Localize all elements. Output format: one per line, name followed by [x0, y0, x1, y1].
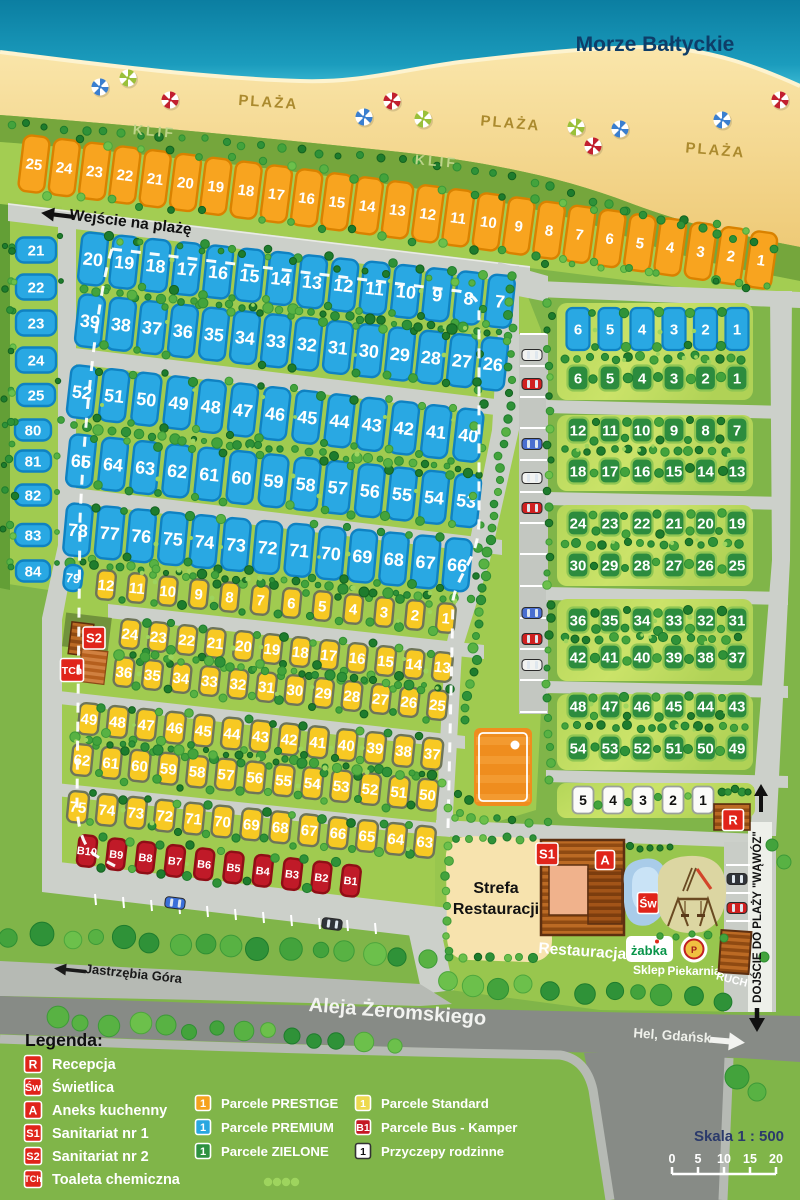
svg-text:R: R [728, 813, 738, 828]
svg-text:47: 47 [232, 399, 254, 421]
svg-text:27: 27 [371, 691, 389, 710]
svg-text:15: 15 [666, 463, 683, 480]
svg-text:0: 0 [669, 1152, 676, 1166]
svg-text:67: 67 [300, 822, 318, 841]
svg-text:10: 10 [159, 583, 177, 602]
svg-text:38: 38 [110, 314, 132, 336]
svg-text:5: 5 [317, 598, 327, 616]
svg-text:Parcele Standard: Parcele Standard [381, 1096, 489, 1111]
svg-text:35: 35 [143, 667, 161, 686]
svg-text:4: 4 [609, 792, 617, 808]
svg-text:39: 39 [666, 649, 683, 666]
svg-text:1: 1 [441, 610, 451, 628]
svg-text:65: 65 [70, 451, 92, 473]
svg-text:74: 74 [193, 531, 215, 553]
svg-text:12: 12 [97, 577, 115, 596]
svg-text:69: 69 [242, 816, 260, 835]
svg-text:24: 24 [28, 352, 45, 369]
svg-text:Świetlica: Świetlica [52, 1078, 115, 1096]
svg-text:13: 13 [433, 659, 451, 678]
svg-text:49: 49 [729, 740, 746, 757]
svg-text:82: 82 [25, 487, 42, 504]
svg-text:53: 53 [602, 740, 619, 757]
svg-text:18: 18 [145, 255, 167, 277]
svg-text:18: 18 [291, 644, 309, 663]
svg-text:44: 44 [328, 410, 350, 432]
svg-text:6: 6 [286, 595, 296, 613]
svg-text:Parcele PRESTIGE: Parcele PRESTIGE [221, 1096, 338, 1111]
svg-text:72: 72 [155, 807, 173, 826]
svg-text:27: 27 [451, 350, 473, 372]
svg-text:28: 28 [343, 688, 361, 707]
svg-text:17: 17 [176, 258, 198, 280]
svg-text:67: 67 [415, 552, 437, 574]
svg-text:1: 1 [733, 370, 741, 387]
svg-text:76: 76 [130, 525, 152, 547]
svg-text:24: 24 [55, 159, 74, 178]
svg-text:13: 13 [388, 201, 407, 220]
svg-text:1: 1 [200, 1098, 206, 1110]
svg-text:68: 68 [383, 549, 405, 571]
svg-text:71: 71 [288, 540, 310, 562]
svg-text:28: 28 [420, 347, 442, 369]
svg-text:B10: B10 [76, 845, 97, 859]
svg-text:32: 32 [229, 676, 247, 695]
svg-text:25: 25 [428, 697, 446, 716]
svg-text:B4: B4 [255, 865, 271, 879]
svg-text:31: 31 [729, 612, 746, 629]
svg-text:A: A [600, 853, 610, 868]
svg-text:Morze Bałtyckie: Morze Bałtyckie [576, 33, 735, 56]
svg-text:7: 7 [494, 291, 506, 312]
svg-text:żabka: żabka [631, 943, 668, 958]
svg-text:DOJŚCIE DO PLAŻY "WĄWÓZ": DOJŚCIE DO PLAŻY "WĄWÓZ" [751, 831, 764, 1003]
svg-text:Skala 1 : 500: Skala 1 : 500 [694, 1128, 784, 1145]
svg-text:5: 5 [579, 792, 587, 808]
svg-text:47: 47 [602, 698, 619, 715]
svg-text:Sanitariat nr 1: Sanitariat nr 1 [52, 1126, 149, 1142]
svg-text:53: 53 [332, 778, 350, 797]
svg-text:5: 5 [606, 321, 614, 338]
svg-text:20: 20 [82, 249, 104, 271]
svg-text:66: 66 [329, 825, 347, 844]
svg-text:19: 19 [729, 515, 746, 532]
svg-text:28: 28 [634, 557, 651, 574]
svg-text:23: 23 [602, 515, 619, 532]
svg-text:22: 22 [28, 279, 45, 296]
svg-text:20: 20 [176, 174, 195, 193]
svg-text:29: 29 [314, 685, 332, 704]
svg-text:61: 61 [102, 755, 120, 774]
svg-text:7: 7 [255, 592, 265, 610]
svg-text:1: 1 [733, 321, 741, 338]
svg-text:14: 14 [697, 463, 714, 480]
svg-text:34: 34 [234, 327, 256, 349]
svg-text:Św: Św [639, 895, 657, 910]
svg-text:35: 35 [602, 612, 619, 629]
svg-text:16: 16 [348, 650, 366, 669]
svg-text:60: 60 [230, 467, 252, 489]
svg-text:S1: S1 [26, 1128, 39, 1140]
svg-text:44: 44 [697, 698, 714, 715]
svg-text:49: 49 [167, 392, 189, 414]
svg-text:Recepcja: Recepcja [52, 1057, 117, 1073]
svg-text:16: 16 [297, 189, 316, 208]
svg-text:26: 26 [697, 557, 714, 574]
svg-text:81: 81 [25, 453, 42, 470]
svg-text:77: 77 [99, 523, 121, 545]
svg-text:Parcele PREMIUM: Parcele PREMIUM [221, 1120, 334, 1135]
svg-text:B7: B7 [167, 855, 182, 868]
svg-text:60: 60 [130, 757, 148, 776]
svg-text:68: 68 [271, 819, 289, 838]
svg-text:Strefa: Strefa [473, 880, 518, 897]
svg-text:40: 40 [337, 737, 355, 756]
svg-text:43: 43 [729, 698, 746, 715]
svg-text:25: 25 [28, 387, 45, 404]
svg-text:42: 42 [570, 649, 587, 666]
svg-text:80: 80 [25, 422, 42, 439]
svg-text:18: 18 [237, 182, 256, 201]
svg-text:45: 45 [666, 698, 683, 715]
svg-text:27: 27 [666, 557, 683, 574]
svg-text:3: 3 [379, 604, 389, 622]
svg-text:17: 17 [320, 647, 338, 666]
svg-text:14: 14 [358, 197, 377, 216]
svg-text:23: 23 [149, 629, 167, 648]
svg-text:10: 10 [479, 213, 498, 232]
svg-text:21: 21 [146, 170, 165, 189]
svg-text:78: 78 [67, 520, 89, 542]
svg-text:19: 19 [263, 641, 281, 660]
svg-text:2: 2 [701, 370, 709, 387]
svg-text:Parcele Bus - Kamper: Parcele Bus - Kamper [381, 1120, 517, 1135]
svg-text:13: 13 [729, 463, 746, 480]
svg-text:3: 3 [670, 321, 678, 338]
svg-text:8: 8 [225, 589, 235, 607]
svg-text:54: 54 [303, 775, 322, 794]
svg-text:B6: B6 [196, 858, 211, 871]
svg-text:21: 21 [666, 515, 683, 532]
svg-text:9: 9 [670, 422, 678, 439]
svg-text:37: 37 [729, 649, 746, 666]
svg-text:Restauracji: Restauracji [453, 901, 539, 918]
svg-text:2: 2 [669, 792, 677, 808]
svg-text:R: R [29, 1057, 38, 1071]
svg-text:61: 61 [198, 464, 220, 486]
svg-text:26: 26 [400, 694, 418, 713]
svg-text:18: 18 [570, 463, 587, 480]
svg-text:29: 29 [602, 557, 619, 574]
svg-text:B9: B9 [109, 849, 124, 862]
svg-text:20: 20 [234, 638, 252, 657]
svg-text:50: 50 [418, 786, 436, 805]
svg-text:43: 43 [361, 414, 383, 436]
svg-text:B5: B5 [226, 862, 241, 875]
svg-text:32: 32 [697, 612, 714, 629]
svg-text:16: 16 [634, 463, 651, 480]
svg-text:33: 33 [265, 330, 287, 352]
svg-text:3: 3 [639, 792, 647, 808]
svg-text:42: 42 [280, 731, 298, 750]
svg-text:57: 57 [327, 477, 349, 499]
svg-text:15: 15 [238, 265, 260, 287]
svg-text:42: 42 [393, 417, 415, 439]
svg-text:63: 63 [134, 457, 156, 479]
svg-text:22: 22 [634, 515, 651, 532]
svg-text:20: 20 [697, 515, 714, 532]
svg-text:Sanitariat nr 2: Sanitariat nr 2 [52, 1149, 149, 1165]
svg-text:50: 50 [135, 389, 157, 411]
svg-text:16: 16 [207, 262, 229, 284]
svg-text:19: 19 [206, 178, 225, 197]
svg-text:5: 5 [695, 1152, 702, 1166]
svg-text:43: 43 [251, 728, 269, 747]
svg-text:6: 6 [574, 321, 582, 338]
svg-text:A: A [29, 1103, 38, 1117]
svg-text:21: 21 [206, 635, 224, 654]
svg-text:P: P [691, 945, 697, 955]
svg-text:36: 36 [570, 612, 587, 629]
svg-text:30: 30 [358, 340, 380, 362]
svg-text:15: 15 [328, 193, 347, 212]
svg-text:31: 31 [327, 337, 349, 359]
svg-text:21: 21 [28, 242, 45, 259]
svg-text:1: 1 [360, 1146, 366, 1158]
svg-text:44: 44 [223, 725, 242, 744]
svg-text:3: 3 [670, 370, 678, 387]
svg-text:66: 66 [446, 554, 468, 576]
svg-text:33: 33 [200, 673, 218, 692]
svg-text:35: 35 [203, 324, 225, 346]
svg-text:37: 37 [423, 745, 441, 764]
svg-text:59: 59 [159, 760, 177, 779]
svg-text:72: 72 [257, 537, 279, 559]
svg-text:58: 58 [295, 474, 317, 496]
svg-text:55: 55 [274, 772, 292, 791]
svg-text:17: 17 [267, 185, 286, 204]
svg-text:83: 83 [25, 527, 42, 544]
svg-text:63: 63 [416, 833, 434, 852]
svg-text:10: 10 [634, 422, 651, 439]
svg-text:38: 38 [394, 742, 412, 761]
svg-text:Legenda:: Legenda: [25, 1030, 103, 1050]
svg-text:52: 52 [361, 781, 379, 800]
svg-text:48: 48 [570, 698, 587, 715]
svg-text:46: 46 [264, 403, 286, 425]
svg-text:58: 58 [188, 763, 206, 782]
svg-text:23: 23 [85, 163, 104, 182]
svg-text:25: 25 [729, 557, 746, 574]
svg-text:55: 55 [391, 484, 413, 506]
svg-text:Piekarnia: Piekarnia [667, 964, 721, 978]
svg-text:Parcele ZIELONE: Parcele ZIELONE [221, 1144, 329, 1159]
svg-text:23: 23 [28, 315, 45, 332]
svg-text:9: 9 [194, 586, 204, 604]
svg-text:14: 14 [405, 656, 424, 675]
svg-text:40: 40 [634, 649, 651, 666]
svg-text:41: 41 [425, 421, 447, 443]
svg-text:15: 15 [376, 653, 394, 672]
svg-text:11: 11 [602, 422, 618, 439]
svg-text:36: 36 [115, 664, 133, 683]
svg-text:49: 49 [80, 711, 98, 730]
svg-text:65: 65 [358, 828, 376, 847]
svg-text:34: 34 [634, 612, 651, 629]
svg-text:2: 2 [701, 321, 709, 338]
svg-text:B3: B3 [284, 868, 299, 881]
svg-text:12: 12 [570, 422, 587, 439]
svg-text:2: 2 [410, 607, 420, 625]
svg-text:B1: B1 [356, 1122, 370, 1134]
svg-text:24: 24 [570, 515, 587, 532]
svg-text:22: 22 [178, 632, 196, 651]
svg-text:41: 41 [602, 649, 619, 666]
svg-text:S2: S2 [26, 1151, 39, 1163]
svg-text:52: 52 [634, 740, 651, 757]
svg-text:62: 62 [166, 460, 188, 482]
svg-text:71: 71 [184, 810, 202, 829]
svg-text:30: 30 [570, 557, 587, 574]
svg-text:69: 69 [351, 546, 373, 568]
svg-text:S2: S2 [86, 631, 102, 646]
svg-text:64: 64 [387, 831, 406, 850]
svg-text:54: 54 [570, 740, 587, 757]
svg-text:33: 33 [666, 612, 683, 629]
svg-text:51: 51 [103, 385, 125, 407]
svg-text:73: 73 [225, 534, 247, 556]
svg-text:73: 73 [127, 804, 145, 823]
svg-text:39: 39 [366, 740, 384, 759]
svg-text:57: 57 [217, 766, 235, 785]
svg-text:B2: B2 [314, 872, 329, 885]
svg-text:1: 1 [699, 792, 707, 808]
svg-text:4: 4 [638, 321, 647, 338]
svg-text:36: 36 [172, 320, 194, 342]
svg-text:8: 8 [701, 422, 709, 439]
svg-text:22: 22 [115, 166, 134, 185]
svg-text:B8: B8 [138, 852, 153, 865]
svg-text:Aneks kuchenny: Aneks kuchenny [52, 1103, 167, 1119]
svg-text:46: 46 [634, 698, 651, 715]
svg-text:TCh: TCh [24, 1174, 42, 1184]
svg-text:17: 17 [602, 463, 619, 480]
svg-text:26: 26 [482, 353, 504, 375]
svg-text:Toaleta chemiczna: Toaleta chemiczna [52, 1172, 181, 1188]
svg-text:4: 4 [638, 370, 647, 387]
svg-text:51: 51 [666, 740, 683, 757]
svg-text:59: 59 [263, 470, 285, 492]
svg-text:19: 19 [113, 252, 135, 274]
svg-text:48: 48 [108, 713, 126, 732]
svg-text:37: 37 [141, 317, 163, 339]
svg-text:50: 50 [697, 740, 714, 757]
svg-text:75: 75 [162, 528, 184, 550]
svg-text:24: 24 [121, 626, 140, 645]
svg-text:32: 32 [296, 334, 318, 356]
svg-text:46: 46 [166, 719, 184, 738]
svg-text:64: 64 [102, 454, 124, 476]
svg-text:56: 56 [359, 480, 381, 502]
svg-text:47: 47 [137, 716, 155, 735]
svg-text:54: 54 [423, 487, 445, 509]
svg-text:Św: Św [25, 1081, 41, 1094]
svg-text:B1: B1 [343, 875, 358, 888]
svg-text:5: 5 [606, 370, 614, 387]
svg-text:25: 25 [25, 155, 44, 174]
svg-text:12: 12 [418, 205, 437, 224]
svg-text:1: 1 [200, 1146, 206, 1158]
svg-text:31: 31 [257, 679, 275, 698]
svg-text:11: 11 [449, 209, 467, 228]
svg-text:30: 30 [286, 682, 304, 701]
svg-text:74: 74 [98, 802, 117, 821]
svg-text:Sklep: Sklep [633, 963, 665, 977]
svg-text:7: 7 [733, 422, 741, 439]
svg-text:62: 62 [73, 752, 91, 771]
svg-text:56: 56 [246, 769, 264, 788]
svg-text:15: 15 [743, 1152, 757, 1166]
svg-text:38: 38 [697, 649, 714, 666]
svg-text:Przyczepy rodzinne: Przyczepy rodzinne [381, 1144, 504, 1159]
svg-text:1: 1 [360, 1098, 366, 1110]
svg-text:51: 51 [390, 784, 408, 803]
svg-text:29: 29 [389, 343, 411, 365]
svg-text:48: 48 [200, 396, 222, 418]
svg-text:84: 84 [25, 563, 42, 580]
svg-text:11: 11 [128, 580, 145, 598]
svg-text:10: 10 [717, 1152, 731, 1166]
svg-text:41: 41 [309, 734, 327, 753]
svg-text:70: 70 [320, 543, 342, 565]
svg-text:45: 45 [296, 407, 318, 429]
svg-text:70: 70 [213, 813, 231, 832]
svg-text:S1: S1 [539, 847, 555, 862]
svg-text:45: 45 [194, 722, 212, 741]
svg-text:6: 6 [574, 370, 582, 387]
svg-text:34: 34 [172, 670, 191, 689]
svg-text:1: 1 [200, 1122, 206, 1134]
svg-text:20: 20 [769, 1152, 783, 1166]
